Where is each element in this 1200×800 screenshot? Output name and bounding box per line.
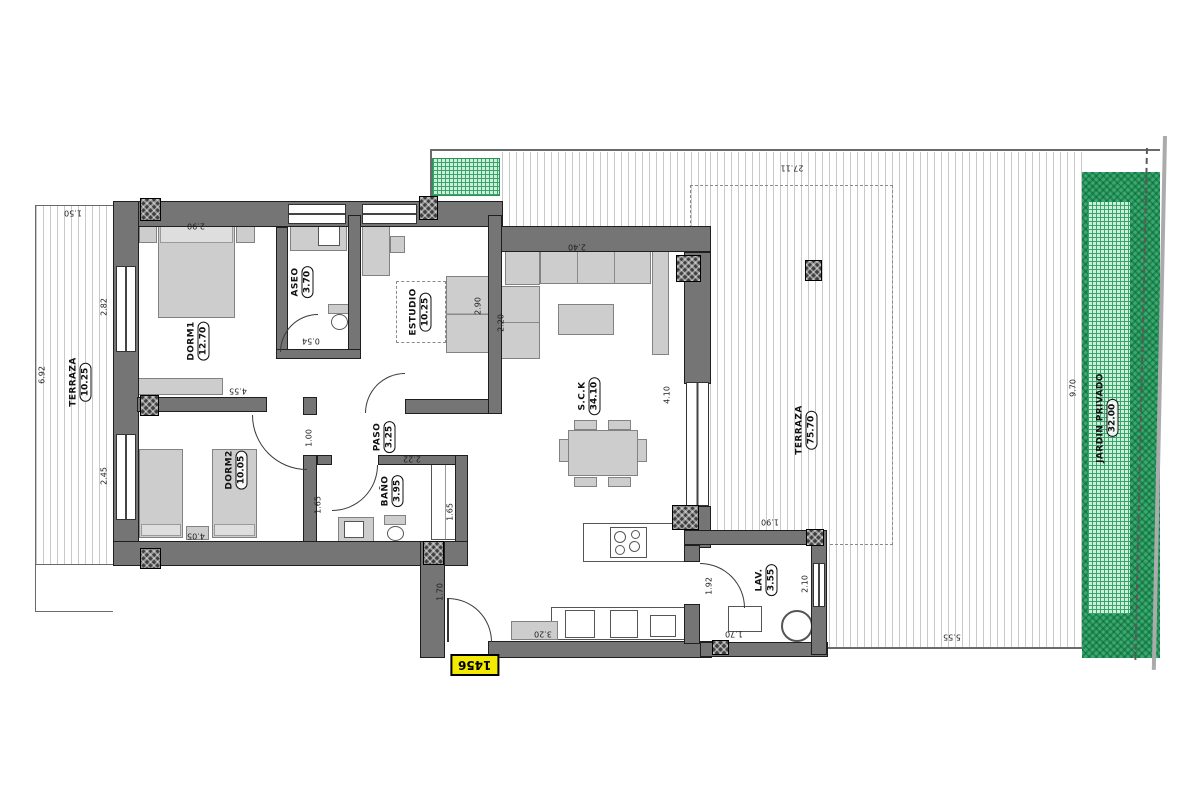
- kitchen-sink: [650, 615, 676, 637]
- dim-label: 1.65: [314, 496, 323, 514]
- dim-label: 1.50: [64, 209, 82, 218]
- dim-label: 1.00: [305, 429, 314, 447]
- coffee-table: [558, 304, 614, 335]
- tv-bench: [652, 244, 669, 355]
- dim-label: 4.05: [187, 532, 205, 541]
- bed-pillow: [214, 524, 255, 536]
- wall-lav-left-a: [684, 545, 700, 562]
- dresser: [127, 378, 223, 395]
- terrace-right-deck-top: [502, 152, 710, 226]
- dining-table: [568, 430, 638, 476]
- studio-sofa: [446, 276, 490, 353]
- roof-overhang-dashed: [690, 185, 893, 545]
- room-name: PASO: [373, 423, 383, 451]
- sink: [318, 226, 340, 246]
- burner: [614, 531, 626, 543]
- room-label-jardin: JARDIN PRIVADO 32.00: [1096, 373, 1119, 463]
- room-area: 10.25: [420, 293, 432, 331]
- dim-label: 2.22: [403, 455, 421, 464]
- room-name: TERRAZA: [69, 357, 79, 406]
- toilet-tank: [328, 304, 350, 314]
- terrace-bottom-line: [826, 647, 1082, 649]
- wall-bano-right: [455, 455, 468, 542]
- bed-pillow: [141, 524, 181, 536]
- room-label-paso: PASO 3.25: [373, 421, 396, 453]
- dining-chair: [608, 477, 631, 487]
- room-area: 3.70: [302, 266, 314, 298]
- room-area: 75.70: [806, 411, 818, 449]
- room-name: LAV.: [755, 569, 765, 592]
- window-estudio-top: [362, 204, 417, 224]
- room-area: 12.70: [198, 322, 210, 360]
- room-name: ASEO: [291, 268, 301, 297]
- burner: [615, 545, 625, 555]
- room-label-terraza-left: TERRAZA 10.25: [69, 357, 92, 406]
- column: [676, 255, 701, 282]
- column: [419, 196, 438, 220]
- window-dorm2: [116, 434, 136, 520]
- green-patch-top: [432, 158, 500, 196]
- room-name: JARDIN PRIVADO: [1096, 373, 1106, 463]
- window-dorm1: [116, 266, 136, 352]
- dining-chair: [574, 477, 597, 487]
- toilet-tank: [384, 515, 406, 525]
- sliding-door-terrace: [686, 382, 709, 506]
- dim-label: 1.92: [705, 577, 714, 595]
- dim-label: 2.82: [100, 298, 109, 316]
- floor-plan: TERRAZA 10.25 DORM1 12.70 ASEO 3.70 ESTU…: [0, 0, 1200, 800]
- column: [806, 529, 824, 546]
- armchair: [505, 249, 540, 285]
- room-area: 32.00: [1107, 399, 1119, 437]
- column: [140, 395, 159, 416]
- dim-label: 27.11: [781, 164, 804, 173]
- room-name: ESTUDIO: [409, 288, 419, 335]
- dim-label: 2.40: [568, 243, 586, 252]
- dim-label: 9.70: [1069, 379, 1078, 397]
- dim-label: 1.70: [436, 583, 445, 601]
- dim-label: 6.92: [38, 366, 47, 384]
- column: [712, 640, 729, 655]
- room-name: DORM1: [187, 321, 197, 360]
- kitchen-appliance: [610, 610, 638, 638]
- plot-top-line: [430, 149, 1160, 151]
- wall-bottom-bedrooms: [113, 541, 468, 566]
- toilet-bowl: [387, 526, 404, 541]
- dim-label: 4.10: [663, 386, 672, 404]
- room-name: BAÑO: [381, 476, 391, 507]
- terrace-left-extension: [35, 565, 125, 612]
- room-label-dorm2: DORM2 10.05: [225, 450, 248, 489]
- room-label-estudio: ESTUDIO 10.25: [409, 288, 432, 335]
- room-area: 3.25: [384, 421, 396, 453]
- column-terrace: [805, 260, 822, 281]
- column: [423, 541, 444, 565]
- dim-label: 1.65: [446, 503, 455, 521]
- dining-chair: [608, 420, 631, 430]
- desk-chair: [390, 236, 405, 253]
- dim-label: 5.55: [943, 633, 961, 642]
- bath-sink: [344, 521, 364, 538]
- burner: [631, 530, 640, 539]
- room-area: 34.10: [589, 377, 601, 415]
- dim-label: 2.90: [474, 297, 483, 315]
- dim-label: 0.54: [302, 337, 320, 346]
- room-area: 10.25: [80, 363, 92, 401]
- column: [672, 505, 699, 530]
- dim-label: 2.90: [187, 222, 205, 231]
- burner: [629, 541, 640, 552]
- wall-estudio-bottom: [405, 399, 489, 414]
- room-label-aseo: ASEO 3.70: [291, 266, 314, 298]
- dining-chair: [574, 420, 597, 430]
- wall-paso-stub: [303, 397, 317, 415]
- washing-machine: [781, 610, 813, 642]
- room-area: 3.55: [766, 564, 778, 596]
- room-area: 3.95: [392, 475, 404, 507]
- dining-chair: [637, 439, 647, 462]
- dim-label: 4.55: [229, 387, 247, 396]
- unit-id-tag: 1456: [450, 654, 499, 676]
- room-label-dorm1: DORM1 12.70: [187, 321, 210, 360]
- door-leaf-entrance: [447, 598, 449, 642]
- wall-lav-left-b: [684, 604, 700, 644]
- window-aseo-top: [288, 204, 346, 224]
- laundry-counter: [728, 606, 762, 632]
- room-label-lav: LAV. 3.55: [755, 564, 778, 596]
- room-name: S.C.K: [578, 382, 588, 411]
- dim-label: 1.90: [761, 518, 779, 527]
- wall-aseo-right: [348, 215, 361, 351]
- dim-label: 2.10: [801, 575, 810, 593]
- room-label-terraza-right: TERRAZA 75.70: [795, 405, 818, 454]
- room-label-sck: S.C.K 34.10: [578, 377, 601, 415]
- window-lav: [813, 563, 825, 607]
- wall-bano-top-a: [317, 455, 332, 465]
- room-name: TERRAZA: [795, 405, 805, 454]
- toilet-bowl: [331, 314, 348, 330]
- room-label-bano: BAÑO 3.95: [381, 475, 404, 507]
- room-name: DORM2: [225, 450, 235, 489]
- dim-label: 2.20: [497, 314, 506, 332]
- dim-label: 2.45: [100, 467, 109, 485]
- dim-label: 1.70: [725, 630, 743, 639]
- room-area: 10.05: [236, 451, 248, 489]
- column: [140, 548, 161, 569]
- kitchen-appliance: [565, 610, 595, 638]
- dim-label: 3.20: [534, 630, 552, 639]
- wall-top-sck: [490, 226, 711, 252]
- wall-bottom-sck: [488, 641, 712, 658]
- column: [140, 198, 161, 221]
